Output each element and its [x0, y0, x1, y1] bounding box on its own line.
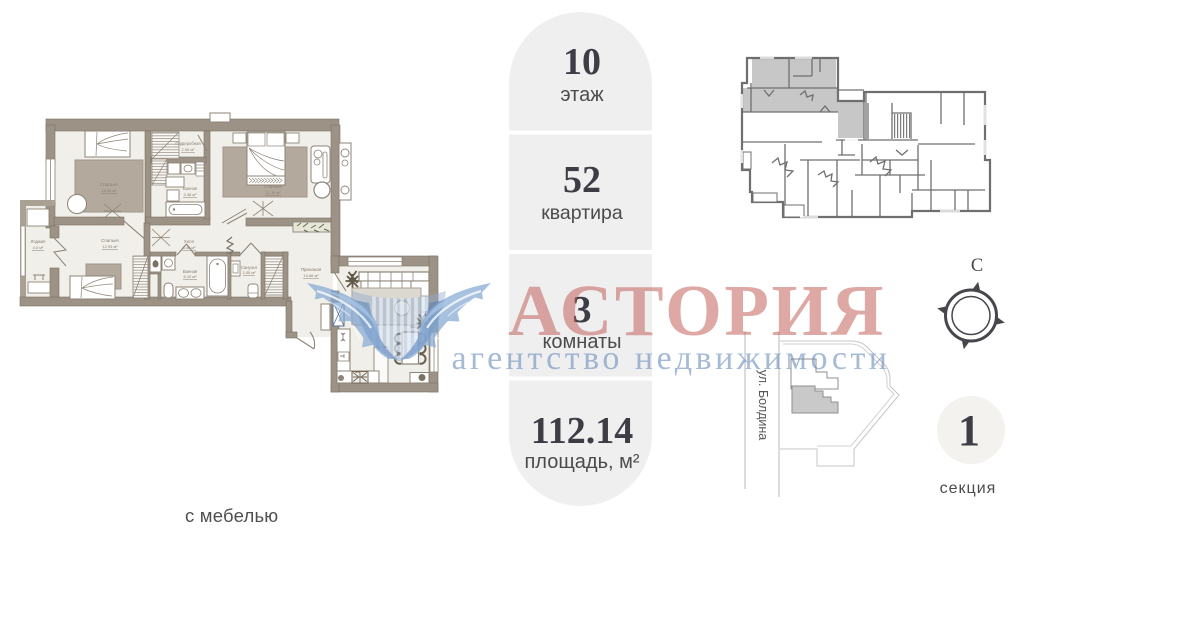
svg-text:площадь, м²: площадь, м²	[524, 451, 639, 473]
svg-text:3.38 м²: 3.38 м²	[184, 192, 198, 197]
svg-text:Ванная: Ванная	[183, 186, 197, 191]
svg-text:52: 52	[563, 159, 601, 201]
svg-text:Прихожая: Прихожая	[301, 267, 322, 272]
svg-text:112.14: 112.14	[531, 410, 633, 452]
svg-text:13.86 м²: 13.86 м²	[303, 273, 319, 278]
svg-text:ул. Болдина: ул. Болдина	[756, 370, 770, 441]
svg-text:21.15 м²: 21.15 м²	[265, 190, 281, 195]
svg-text:агентство недвижимости: агентство недвижимости	[452, 340, 891, 377]
svg-text:1: 1	[958, 406, 980, 455]
svg-text:Гардеробная: Гардеробная	[175, 141, 200, 146]
svg-text:квартира: квартира	[541, 202, 623, 224]
svg-text:секция: секция	[940, 480, 997, 497]
svg-text:Холл: Холл	[184, 239, 195, 244]
svg-text:Спальня: Спальня	[101, 238, 119, 243]
svg-text:Спальня: Спальня	[100, 182, 118, 187]
svg-text:этаж: этаж	[560, 84, 604, 106]
svg-text:4.0 м²: 4.0 м²	[33, 245, 44, 250]
svg-text:2.05 м²: 2.05 м²	[243, 270, 257, 275]
svg-text:АСТОРИЯ: АСТОРИЯ	[508, 270, 886, 351]
svg-text:6.10 м²: 6.10 м²	[184, 274, 198, 279]
svg-text:с мебелью: с мебелью	[185, 505, 278, 526]
svg-text:С: С	[971, 256, 983, 276]
svg-text:Лоджия: Лоджия	[31, 239, 46, 244]
svg-text:2.90 м²: 2.90 м²	[182, 147, 196, 152]
svg-text:15.06 м²: 15.06 м²	[101, 188, 117, 193]
svg-text:10: 10	[563, 41, 601, 83]
svg-text:8.46 м²: 8.46 м²	[183, 245, 197, 250]
svg-text:Спальня: Спальня	[264, 184, 282, 189]
svg-text:12.93 м²: 12.93 м²	[102, 244, 118, 249]
